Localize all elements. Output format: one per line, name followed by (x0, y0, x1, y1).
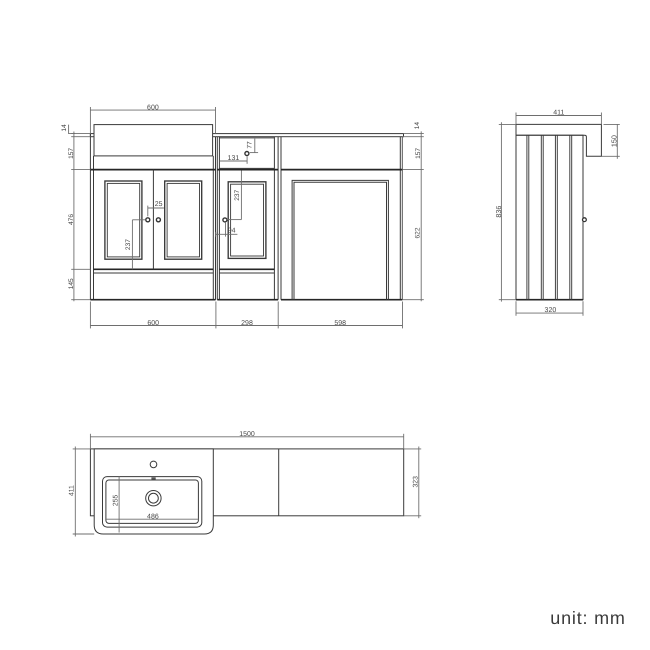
svg-text:255: 255 (113, 495, 120, 507)
svg-text:1500: 1500 (239, 431, 255, 438)
svg-text:131: 131 (228, 155, 240, 162)
svg-text:77: 77 (247, 141, 254, 149)
svg-text:476: 476 (68, 214, 75, 225)
svg-text:94: 94 (228, 228, 236, 235)
svg-text:411: 411 (68, 485, 75, 496)
svg-text:836: 836 (494, 206, 503, 218)
svg-text:486: 486 (147, 513, 159, 520)
svg-text:14: 14 (61, 124, 68, 132)
svg-text:411: 411 (553, 110, 564, 117)
svg-text:157: 157 (68, 148, 75, 159)
svg-text:298: 298 (241, 320, 253, 327)
svg-text:622: 622 (415, 227, 422, 238)
svg-text:unit: mm: unit: mm (550, 608, 625, 628)
svg-text:237: 237 (125, 239, 132, 250)
svg-text:25: 25 (155, 201, 163, 208)
svg-text:14: 14 (414, 122, 421, 130)
svg-text:145: 145 (68, 278, 75, 289)
svg-text:150: 150 (610, 135, 619, 147)
svg-text:237: 237 (234, 189, 241, 200)
svg-text:323: 323 (413, 476, 420, 488)
svg-text:600: 600 (147, 104, 159, 111)
svg-text:157: 157 (415, 148, 422, 159)
svg-text:598: 598 (334, 320, 346, 327)
svg-text:600: 600 (147, 320, 159, 327)
svg-text:320: 320 (545, 307, 557, 314)
